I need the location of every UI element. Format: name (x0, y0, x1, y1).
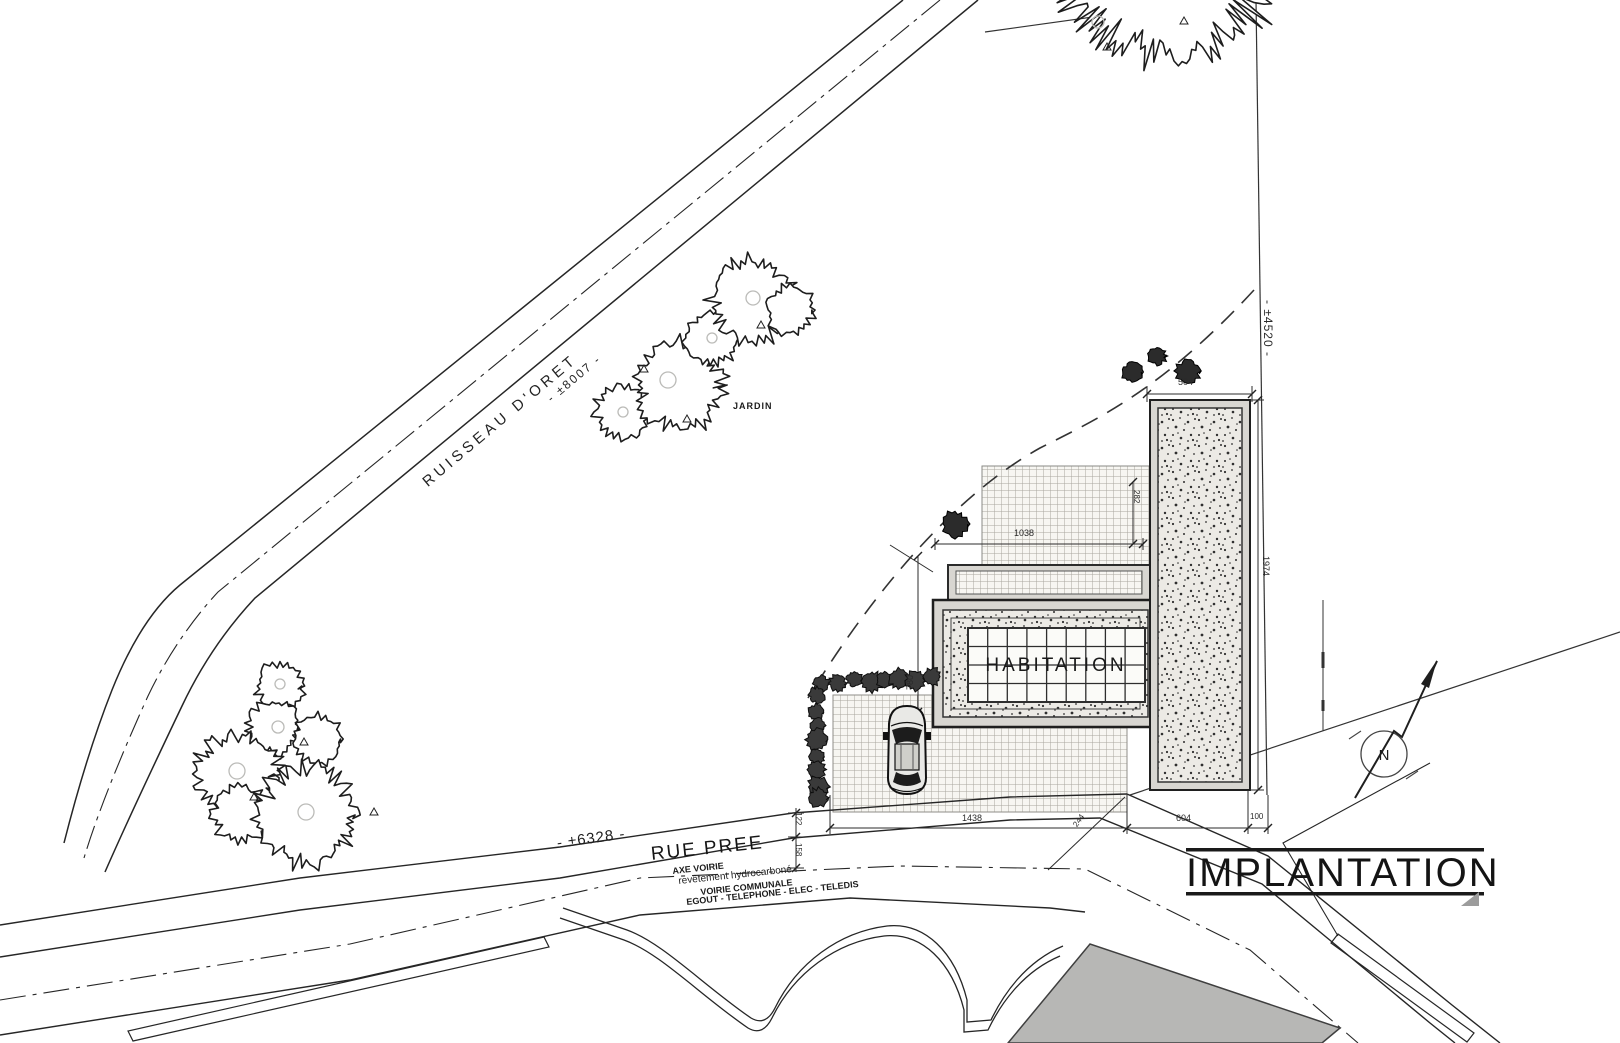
east-boundary-dim: - ±4520 - (1262, 300, 1274, 357)
plan-title: IMPLANTATION (1186, 856, 1484, 890)
dim-verge-upper: 122 (794, 812, 802, 825)
garden-label: JARDIN (733, 402, 773, 411)
terrace-strip (948, 565, 1150, 600)
site-plan-page: N RUISSEAU D'ORET - ±8007 - - ±4520 - 50… (0, 0, 1620, 1043)
dim-front-left: 1438 (962, 814, 982, 823)
dim-upper-terrace: 282 (1132, 490, 1140, 503)
car-icon (883, 706, 931, 794)
dim-front-margin: 100 (1250, 813, 1263, 821)
dim-house-depth: 780 (906, 675, 915, 690)
north-letter: N (1379, 747, 1390, 764)
building-label: HABITATION (976, 656, 1136, 675)
neighbor-building (1008, 944, 1340, 1043)
dim-terrace-width: 504 (1178, 378, 1193, 387)
dim-front-right: 604 (1176, 814, 1191, 823)
dim-house-width: 1038 (1014, 529, 1034, 538)
dim-verge-lower: 158 (794, 843, 802, 856)
dim-terrace-depth: 1974 (1261, 556, 1270, 576)
side-terrace (1150, 400, 1250, 790)
trees (193, 0, 1296, 871)
north-arrow-icon: N (1349, 660, 1437, 798)
